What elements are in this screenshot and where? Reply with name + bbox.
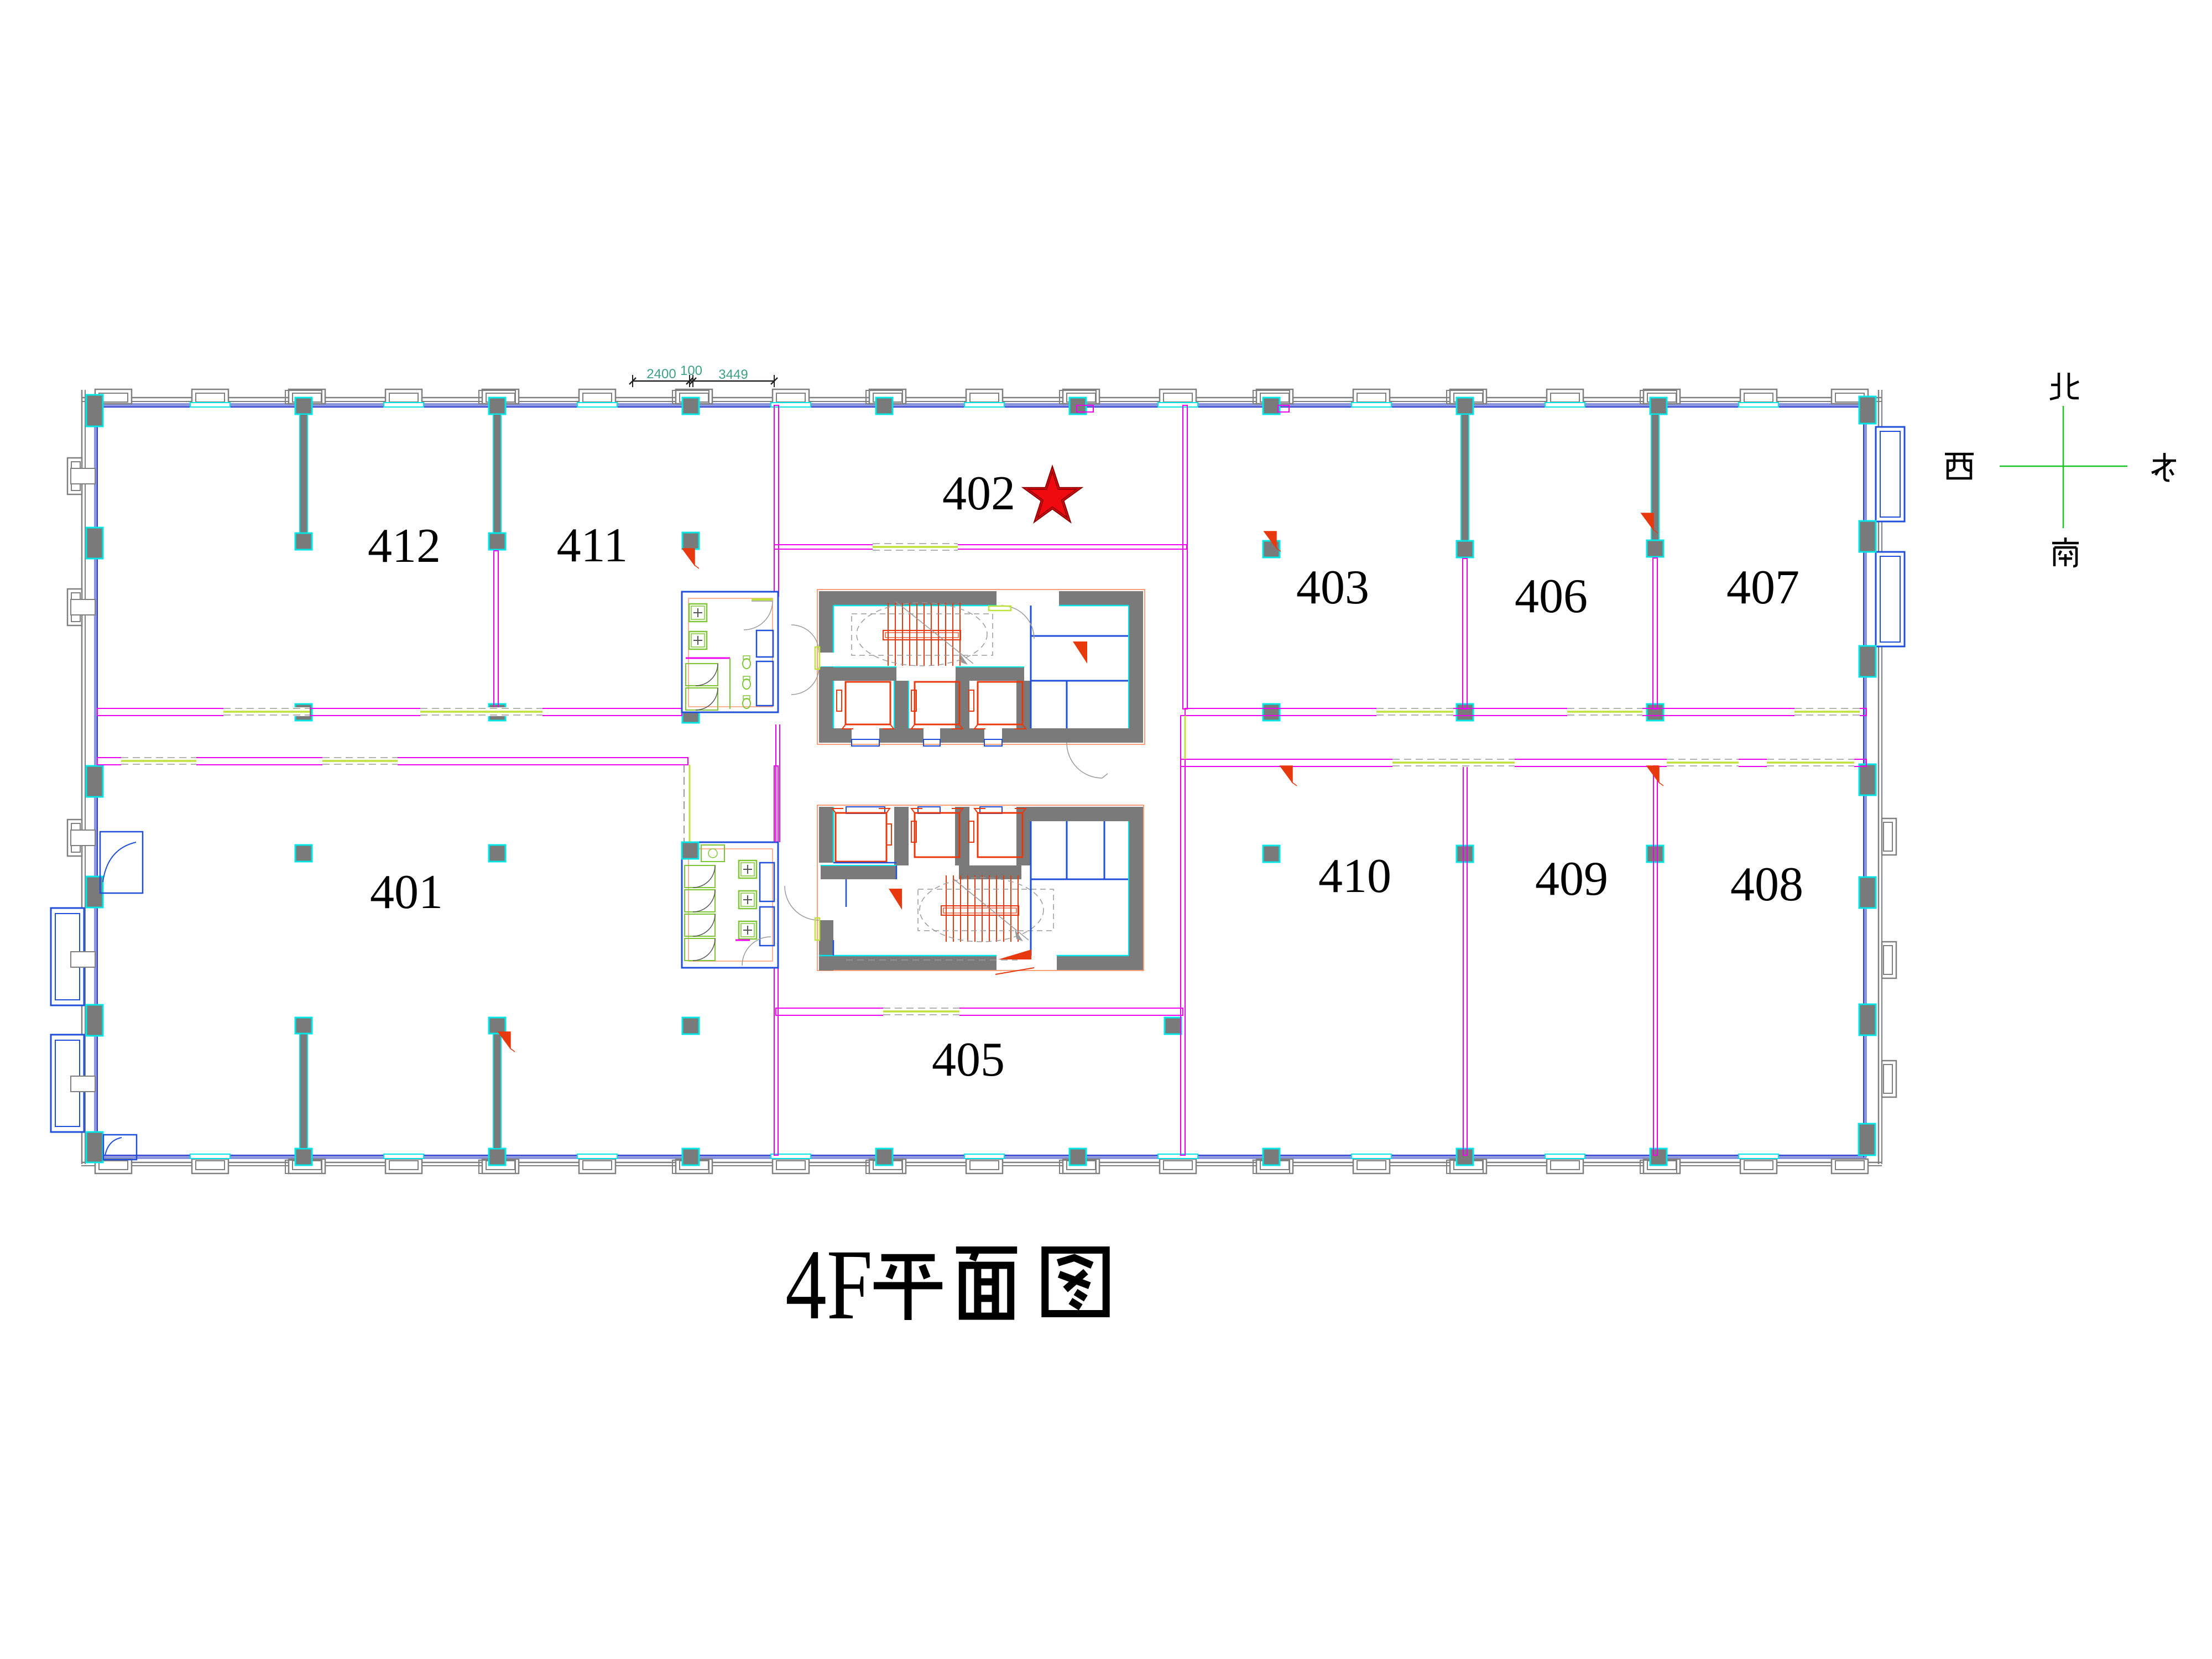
svg-text:405: 405 xyxy=(932,1033,1005,1087)
svg-text:411: 411 xyxy=(557,519,628,572)
svg-text:100: 100 xyxy=(680,363,702,378)
svg-text:412: 412 xyxy=(368,519,441,573)
svg-text:407: 407 xyxy=(1726,561,1799,614)
svg-text:402: 402 xyxy=(942,467,1015,520)
svg-text:401: 401 xyxy=(370,865,443,919)
svg-text:4F: 4F xyxy=(785,1229,873,1340)
svg-text:410: 410 xyxy=(1318,849,1391,903)
svg-text:409: 409 xyxy=(1535,852,1608,906)
svg-text:406: 406 xyxy=(1515,570,1588,623)
svg-text:408: 408 xyxy=(1730,858,1803,911)
svg-text:3449: 3449 xyxy=(718,367,748,382)
svg-text:2400: 2400 xyxy=(646,367,676,382)
svg-text:403: 403 xyxy=(1296,561,1369,614)
